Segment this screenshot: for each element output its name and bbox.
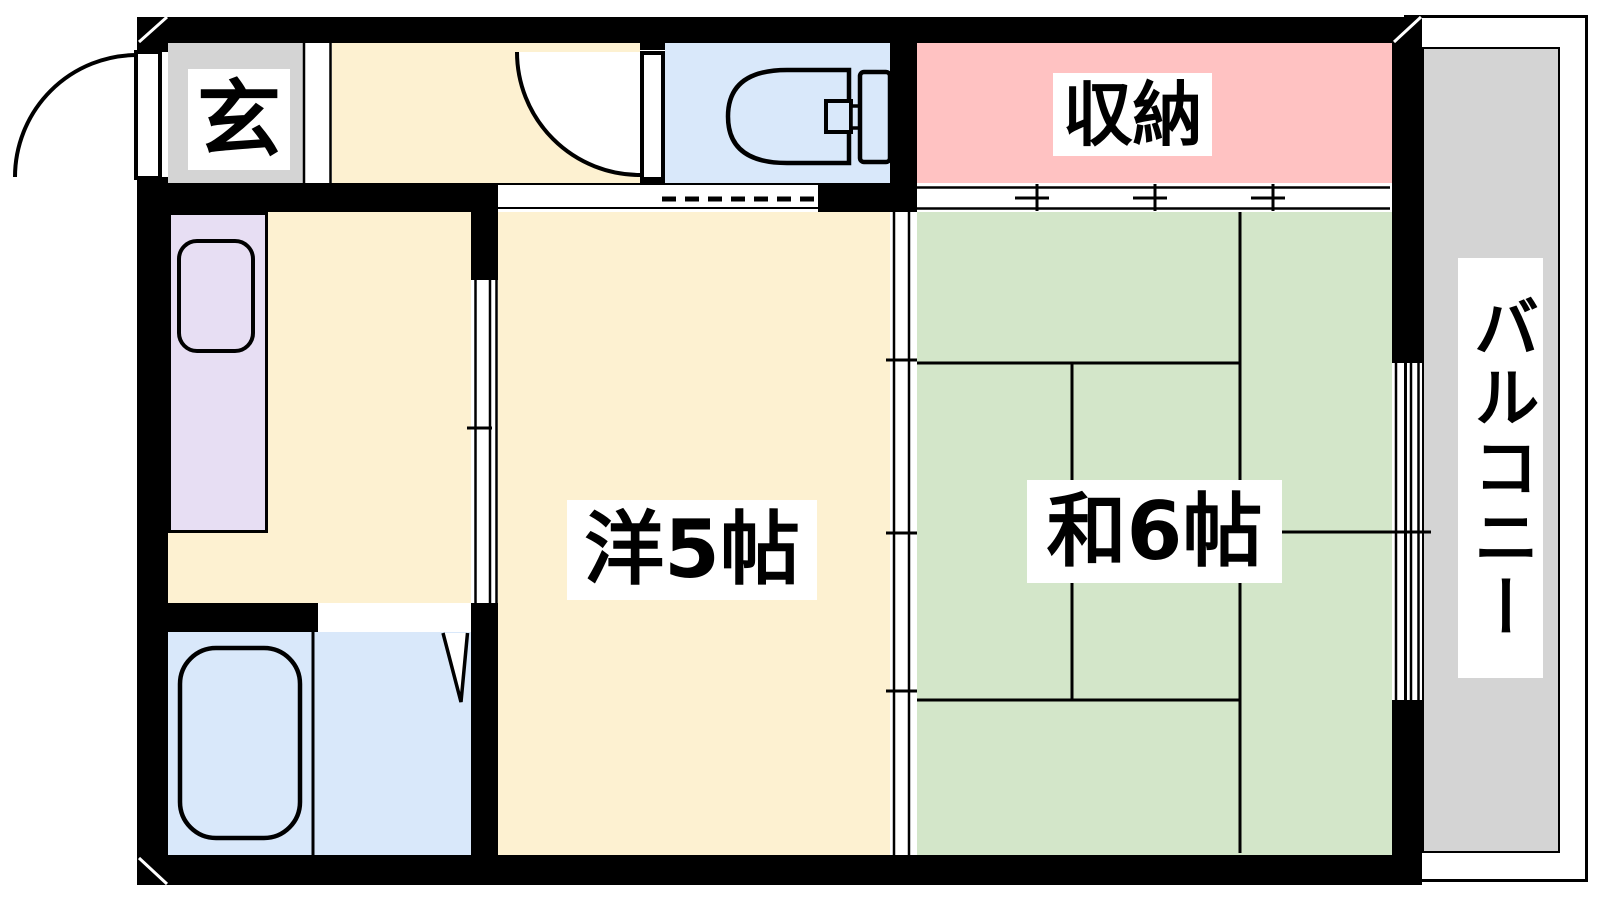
- genkan-label: 玄: [188, 69, 290, 170]
- western-room-label: 洋5帖: [567, 500, 817, 600]
- room-sliding-partition: [886, 212, 917, 855]
- closet-sliding-doors: [917, 184, 1390, 211]
- toilet-floor: [665, 43, 890, 183]
- storage-label: 収納: [1053, 73, 1212, 156]
- entrance-step: [304, 43, 331, 183]
- kitchen-sliding-door: [467, 280, 497, 603]
- japanese-room-label: 和6帖: [1027, 480, 1282, 583]
- bathroom-door-gap: [318, 603, 471, 632]
- floor-plan: 玄 収納 洋5帖 和6帖 バルコニー: [0, 0, 1600, 900]
- hallway-floor: [332, 43, 640, 183]
- wall-kitchen-divider-bottom: [471, 603, 498, 855]
- wall-left: [137, 17, 168, 885]
- wall-right-lower: [1392, 700, 1422, 885]
- wall-bottom: [137, 855, 1422, 885]
- wall-top: [137, 17, 1422, 43]
- kitchen-counter: [168, 212, 268, 533]
- wall-kitchen-divider-top: [471, 183, 498, 280]
- hallway-opening-band: [498, 183, 818, 209]
- wall-toilet-door-column: [640, 43, 665, 185]
- wall-band-left: [137, 183, 498, 212]
- bathroom-floor: [168, 632, 471, 855]
- balcony-label: バルコニー: [1458, 258, 1543, 678]
- wall-band-right: [818, 183, 917, 212]
- wall-right-upper: [1392, 17, 1422, 363]
- wall-bathroom-top: [168, 603, 318, 632]
